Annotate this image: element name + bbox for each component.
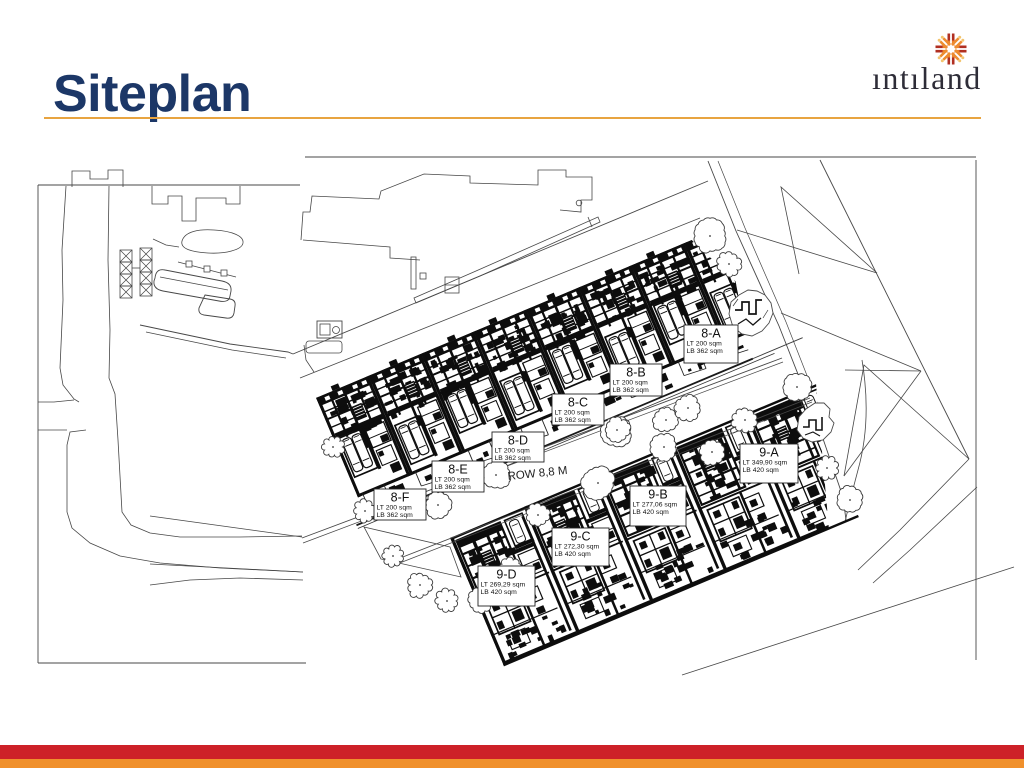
svg-text:LT 277,06 sqm: LT 277,06 sqm [633,502,678,509]
svg-text:8-B: 8-B [626,366,645,380]
svg-text:LT 200 sqm: LT 200 sqm [687,341,723,348]
svg-text:LT 200 sqm: LT 200 sqm [495,448,531,455]
svg-text:LB 420 sqm: LB 420 sqm [633,509,670,516]
svg-text:LT 269,29 sqm: LT 269,29 sqm [481,582,526,589]
svg-text:LB 362 sqm: LB 362 sqm [555,417,592,424]
svg-text:LT 200 sqm: LT 200 sqm [377,505,413,512]
svg-text:LB 362 sqm: LB 362 sqm [377,512,414,519]
svg-text:LB 420 sqm: LB 420 sqm [481,589,518,596]
svg-text:8-C: 8-C [568,396,588,410]
svg-text:LB 362 sqm: LB 362 sqm [435,484,472,491]
svg-text:LT 200 sqm: LT 200 sqm [435,477,471,484]
svg-text:9-D: 9-D [496,568,516,582]
svg-text:LT 200 sqm: LT 200 sqm [555,410,591,417]
svg-text:9-A: 9-A [759,446,779,460]
svg-text:ROW 8,8 M: ROW 8,8 M [507,465,568,483]
svg-text:8-A: 8-A [701,327,721,341]
svg-text:8-D: 8-D [508,434,528,448]
svg-text:LB 420 sqm: LB 420 sqm [555,551,592,558]
svg-text:LT 200 sqm: LT 200 sqm [613,380,649,387]
svg-text:LT 349,90 sqm: LT 349,90 sqm [743,460,788,467]
svg-text:LB 362 sqm: LB 362 sqm [687,348,724,355]
svg-text:9-C: 9-C [570,530,590,544]
svg-text:9-B: 9-B [648,488,667,502]
svg-text:LB 420 sqm: LB 420 sqm [743,467,780,474]
svg-text:LB 362 sqm: LB 362 sqm [613,387,650,394]
svg-text:LT 272,30 sqm: LT 272,30 sqm [555,544,600,551]
svg-text:8-F: 8-F [391,491,410,505]
svg-text:8-E: 8-E [448,463,467,477]
svg-text:LB 362 sqm: LB 362 sqm [495,455,532,462]
